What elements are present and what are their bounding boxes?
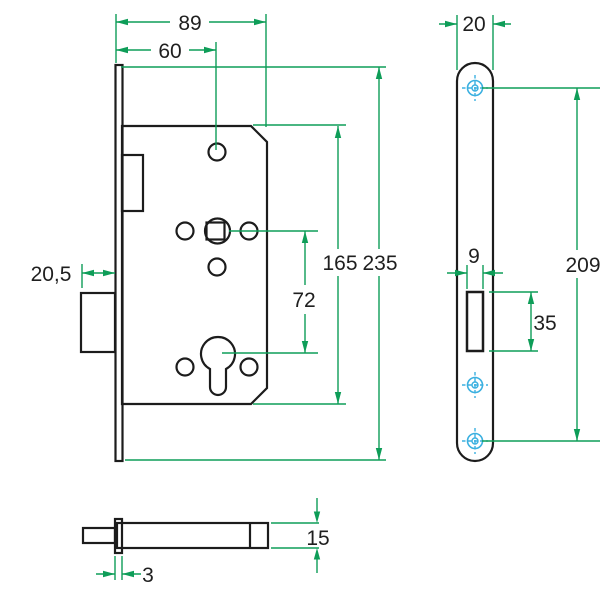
bolt-tip-outline [83, 528, 115, 543]
dimension-9: 9 [447, 245, 503, 289]
dimension-209: 209 [482, 88, 601, 441]
screw-hole-mark-middle [462, 372, 488, 398]
front-view: 89 60 20,5 72 [31, 12, 398, 461]
dim-89-label: 89 [178, 12, 201, 35]
dim-60-label: 60 [158, 40, 181, 63]
dimension-72: 72 [222, 231, 318, 353]
middle-hole [209, 259, 226, 276]
mortise-lock-drawing: 89 60 20,5 72 [0, 0, 616, 601]
latch-cutout-outline [467, 292, 483, 351]
dimension-20-5: 20,5 [31, 263, 115, 288]
dim-9-label: 9 [468, 245, 480, 268]
dimension-60: 60 [116, 40, 216, 150]
lower-right-hole [241, 359, 258, 376]
dimension-20: 20 [439, 13, 511, 70]
latch-bolt-outline [122, 155, 143, 211]
dim-15-label: 15 [306, 527, 329, 550]
dim-35-label: 35 [533, 312, 556, 335]
dimension-3: 3 [96, 556, 154, 587]
dim-235-label: 235 [362, 252, 397, 275]
faceplate-view: 20 9 35 209 [439, 13, 601, 461]
dim-209-label: 209 [565, 254, 600, 277]
dim-20-5-label: 20,5 [31, 263, 72, 286]
dim-3-label: 3 [142, 564, 154, 587]
dimension-15: 15 [271, 498, 330, 573]
deadbolt-outline [81, 293, 115, 352]
lower-left-hole [177, 359, 194, 376]
left-fixing-hole [177, 223, 194, 240]
top-hole [209, 144, 226, 161]
euro-cylinder-hole [201, 337, 235, 395]
dimension-35: 35 [489, 292, 557, 351]
bolt-body-outline [117, 523, 268, 548]
dim-20-label: 20 [462, 13, 485, 36]
dim-165-label: 165 [322, 252, 357, 275]
side-view: 15 3 [83, 498, 330, 587]
dim-72-label: 72 [292, 289, 315, 312]
spindle-square-hole [207, 223, 225, 240]
technical-drawing-canvas: 89 60 20,5 72 [0, 0, 616, 601]
dimension-89: 89 [116, 12, 266, 127]
